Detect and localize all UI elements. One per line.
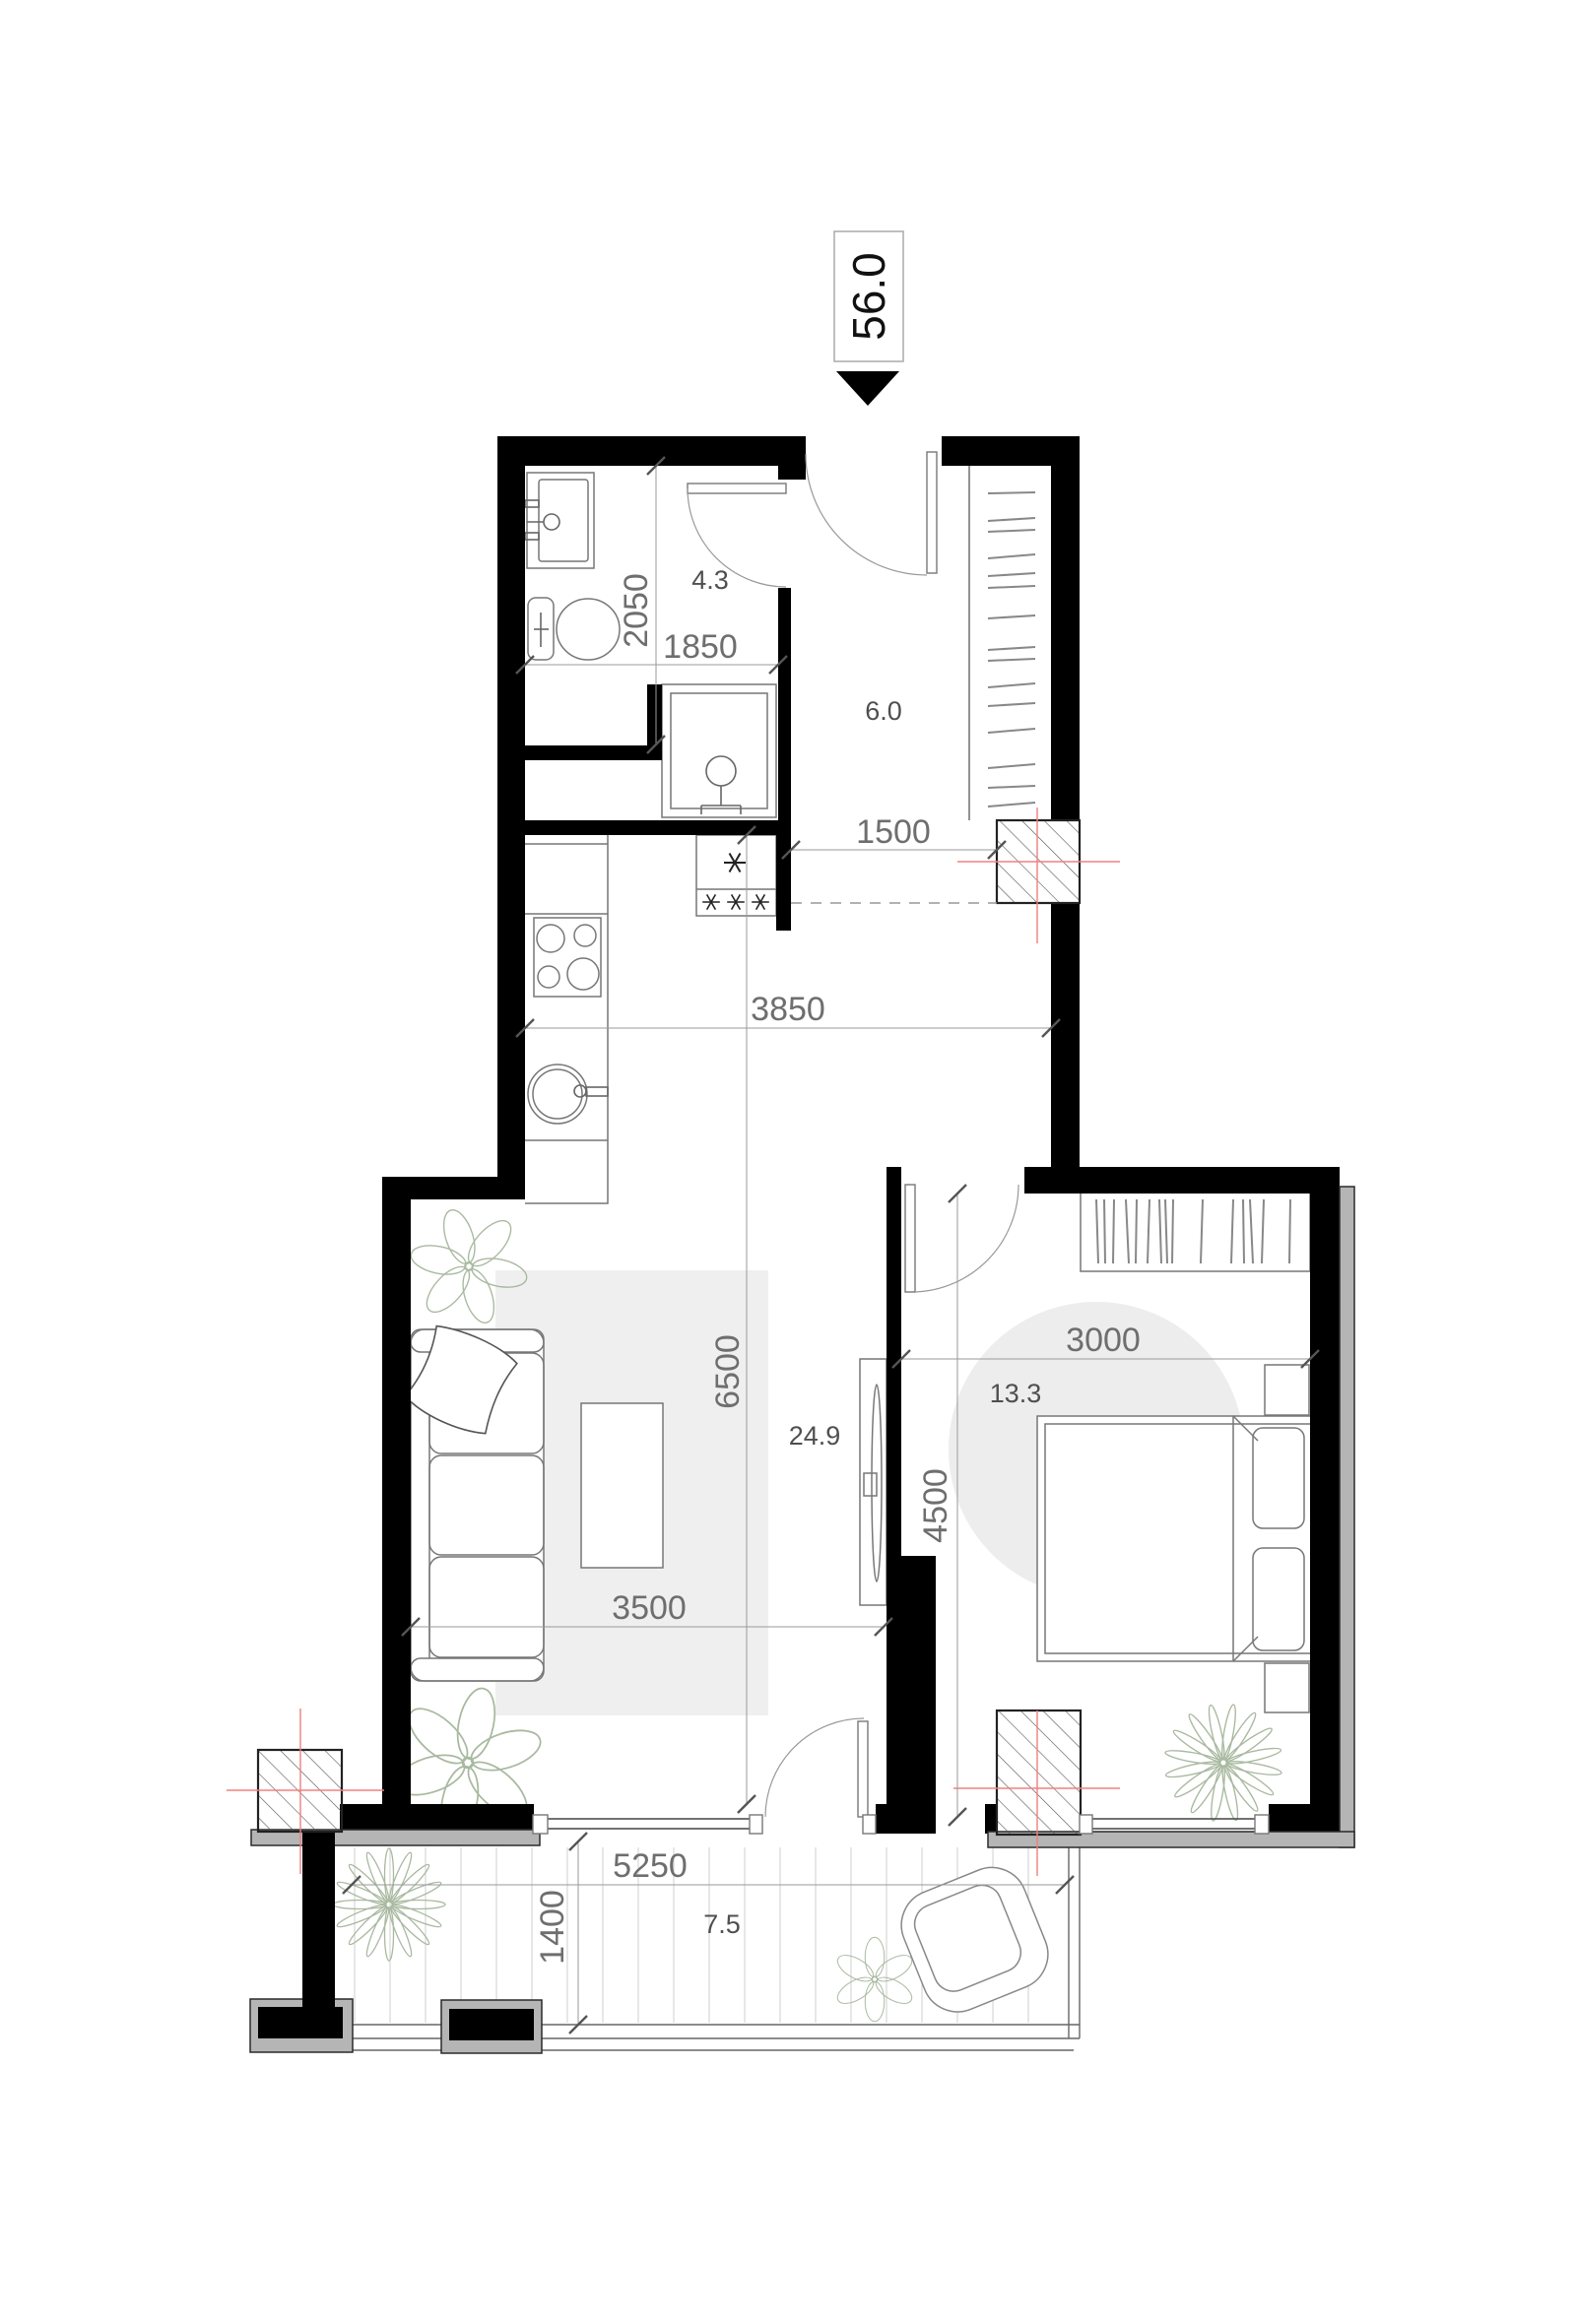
down-triangle-icon [836,371,899,406]
dim-balcony-width: 5250 [613,1847,688,1885]
hall-wardrobe [969,466,1035,820]
room-label-living: 24.9 [789,1421,841,1451]
room-label-balcony: 7.5 [703,1909,741,1939]
dim-bath-width: 1850 [663,628,738,666]
total-area-value: 56.0 [843,252,894,341]
floorplan-page: 2050 1850 1500 3850 6500 3500 3000 4500 … [0,0,1576,2324]
dim-living-width: 3500 [612,1589,687,1627]
coffee-table [581,1403,663,1568]
balcony-armchair [890,1857,1058,2023]
nightstand [1265,1365,1309,1415]
balcony-bottom-pier [441,2000,542,2053]
exterior-band [1340,1187,1354,1847]
dim-living-height: 6500 [709,1334,747,1409]
plant-icon [333,1848,445,1961]
kitchen-sink [528,1065,608,1124]
cooktop [534,918,601,997]
toilet [528,598,620,660]
entry-door [806,452,937,575]
fridge [696,835,776,916]
bed [1037,1416,1312,1661]
room-label-bedroom: 13.3 [990,1379,1042,1408]
tv-unit [860,1359,886,1605]
pillow [1253,1548,1304,1650]
room-label-hallway: 6.0 [865,696,902,726]
dim-kitchen-width: 3850 [751,991,825,1028]
balcony-door [765,1718,876,1834]
bathroom-sink [525,473,594,568]
floorplan-drawing: 2050 1850 1500 3850 6500 3500 3000 4500 … [0,0,1576,2324]
dim-bedroom-height: 4500 [917,1468,954,1543]
living-room-window [533,1815,762,1834]
nightstand [1265,1663,1309,1712]
bedroom-wardrobe [1081,1192,1310,1271]
balcony-left-wall [250,1832,353,2052]
bedroom-window [1080,1815,1269,1834]
kitchen-counter [525,835,608,1203]
dim-bedroom-width: 3000 [1066,1322,1141,1359]
room-label-bathroom: 4.3 [691,565,729,595]
total-area-marker: 56.0 [834,231,903,406]
dim-opening: 1500 [856,813,931,851]
shower [662,684,776,817]
bedroom-door [905,1185,1018,1292]
dim-bath-height: 2050 [618,573,655,648]
dim-balcony-depth: 1400 [534,1890,571,1965]
pillow [1253,1428,1304,1528]
